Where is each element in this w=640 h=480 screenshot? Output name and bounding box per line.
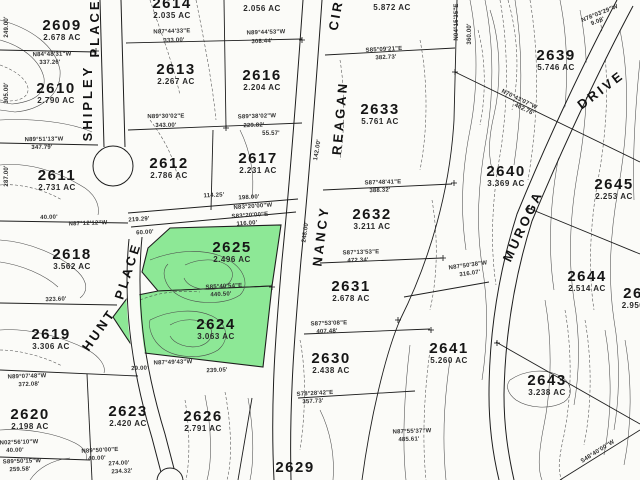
- plat-map-graphics: [0, 0, 640, 480]
- parcel-2625-polygon[interactable]: [142, 225, 281, 291]
- map-canvas[interactable]: 26092.678 AC26142.035 AC2.056 AC5.872 AC…: [0, 0, 640, 480]
- parcel-boundaries: [0, 0, 640, 480]
- contour-lines: [0, 0, 640, 480]
- cul-de-sac-shipley: [93, 146, 133, 186]
